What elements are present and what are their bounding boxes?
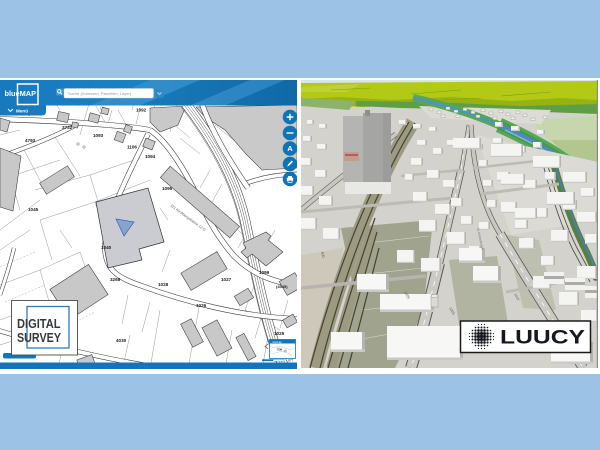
svg-text:1026: 1026 bbox=[196, 303, 207, 308]
svg-text:SURVEY: SURVEY bbox=[17, 330, 61, 345]
svg-text:1027: 1027 bbox=[221, 277, 232, 282]
svg-text:LUUCY: LUUCY bbox=[500, 328, 585, 349]
svg-text:1093: 1093 bbox=[93, 133, 104, 138]
svg-text:blueMAP: blueMAP bbox=[5, 91, 37, 98]
svg-text:DIGITAL: DIGITAL bbox=[17, 316, 61, 331]
svg-text:1092: 1092 bbox=[136, 108, 147, 113]
svg-text:1028: 1028 bbox=[158, 282, 169, 287]
svg-text:1099: 1099 bbox=[259, 270, 270, 275]
svg-text:4030: 4030 bbox=[116, 338, 127, 343]
svg-text:1040: 1040 bbox=[101, 245, 112, 250]
svg-text:4793: 4793 bbox=[25, 138, 36, 143]
svg-text:1106: 1106 bbox=[127, 145, 137, 150]
svg-text:Suche (Adressen, Parzellen, La: Suche (Adressen, Parzellen, Layer) bbox=[68, 91, 132, 96]
svg-text:1094: 1094 bbox=[145, 154, 156, 159]
svg-text:minimap: minimap bbox=[272, 340, 282, 344]
svg-text:3732: 3732 bbox=[62, 125, 73, 130]
svg-text:1025: 1025 bbox=[274, 331, 285, 336]
svg-text:1045: 1045 bbox=[28, 207, 39, 212]
svg-text:Menü: Menü bbox=[16, 109, 28, 114]
svg-text:877: 877 bbox=[288, 359, 294, 363]
svg-text:(4545): (4545) bbox=[276, 284, 288, 289]
svg-text:3268: 3268 bbox=[110, 277, 121, 282]
svg-text:A: A bbox=[287, 144, 293, 153]
svg-text:1095: 1095 bbox=[162, 186, 173, 191]
